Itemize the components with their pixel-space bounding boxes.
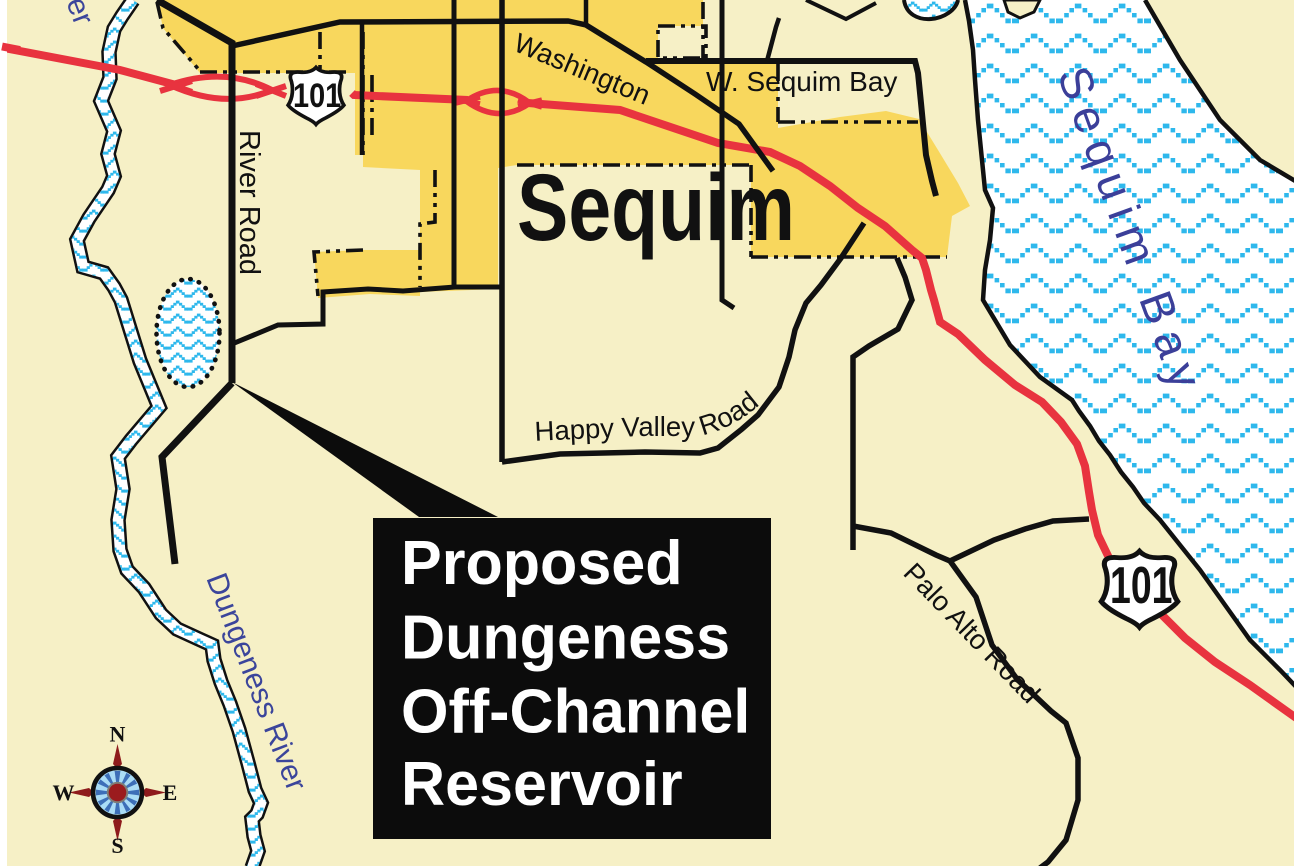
svg-text:Dungeness: Dungeness	[401, 603, 730, 673]
svg-text:101: 101	[1110, 556, 1172, 615]
svg-text:N: N	[110, 722, 126, 747]
svg-text:W: W	[53, 780, 75, 805]
svg-text:Reservoir: Reservoir	[401, 750, 683, 820]
svg-text:W. Sequim Bay: W. Sequim Bay	[706, 66, 897, 97]
svg-text:E: E	[163, 780, 178, 805]
svg-text:Off-Channel: Off-Channel	[401, 677, 750, 747]
svg-text:101: 101	[293, 76, 341, 115]
svg-text:River Road: River Road	[233, 130, 265, 275]
svg-text:S: S	[111, 833, 123, 858]
svg-text:Sequim: Sequim	[517, 155, 795, 260]
svg-text:Proposed: Proposed	[401, 529, 683, 599]
